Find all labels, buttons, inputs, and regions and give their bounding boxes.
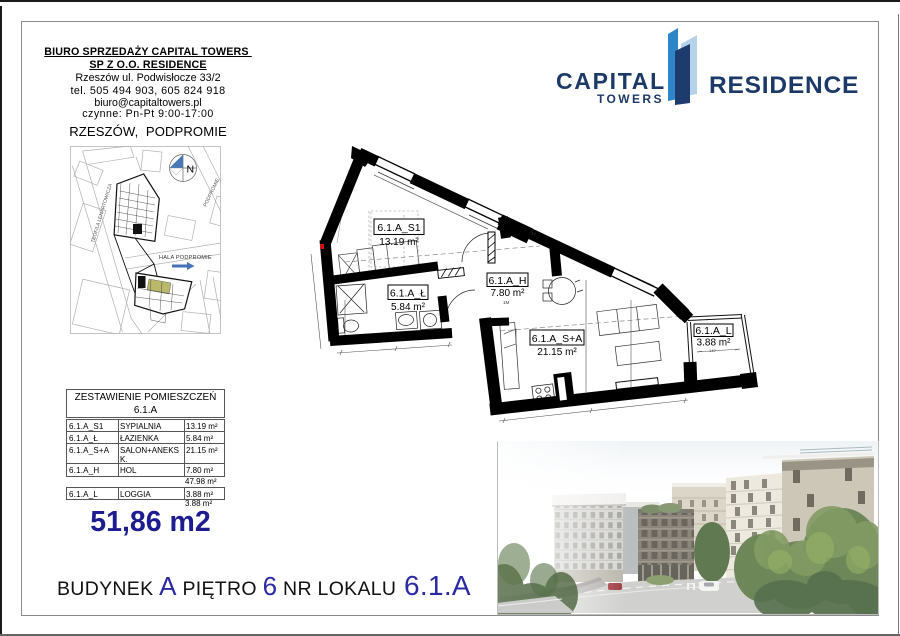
svg-text:6.1.A_Ł: 6.1.A_Ł: [390, 288, 426, 300]
svg-text:13.19 m²: 13.19 m²: [379, 237, 419, 248]
svg-text:1M: 1M: [503, 300, 510, 305]
svg-text:HALA PODPROMIE: HALA PODPROMIE: [159, 255, 212, 261]
svg-text:6.1.A_S+A: 6.1.A_S+A: [532, 333, 583, 345]
svg-text:21.15 m²: 21.15 m²: [537, 347, 577, 358]
svg-text:6.1.A_L: 6.1.A_L: [695, 325, 731, 337]
svg-text:3.88 m²: 3.88 m²: [697, 338, 732, 349]
svg-text:6.1.A_S1: 6.1.A_S1: [377, 222, 420, 234]
svg-text:5.84 m²: 5.84 m²: [391, 302, 426, 313]
svg-text:142: 142: [709, 348, 716, 353]
svg-text:7.80 m²: 7.80 m²: [491, 288, 526, 299]
svg-text:6.1.A_H: 6.1.A_H: [489, 275, 527, 287]
svg-text:N: N: [187, 164, 195, 176]
